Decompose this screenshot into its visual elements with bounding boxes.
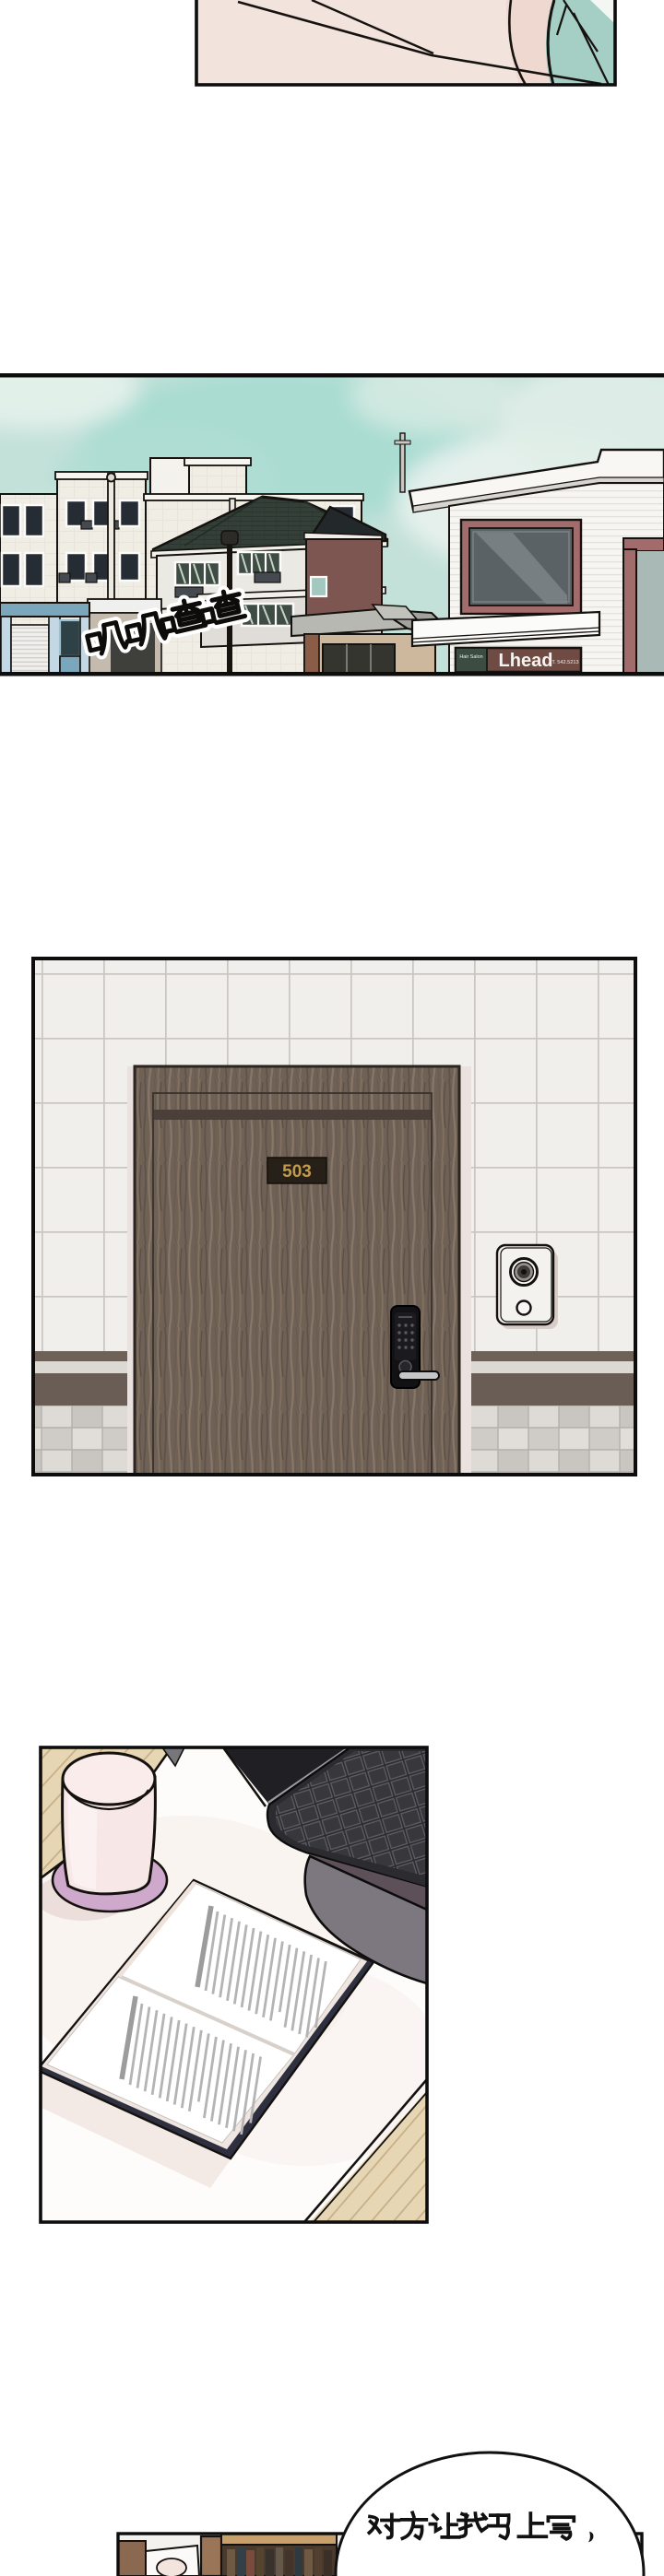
- svg-text:503: 503: [282, 1162, 312, 1182]
- svg-text:Lhead: Lhead: [499, 651, 553, 671]
- svg-text:Hair Salon: Hair Salon: [459, 654, 482, 660]
- svg-text:T. 542.5213: T. 542.5213: [551, 660, 578, 665]
